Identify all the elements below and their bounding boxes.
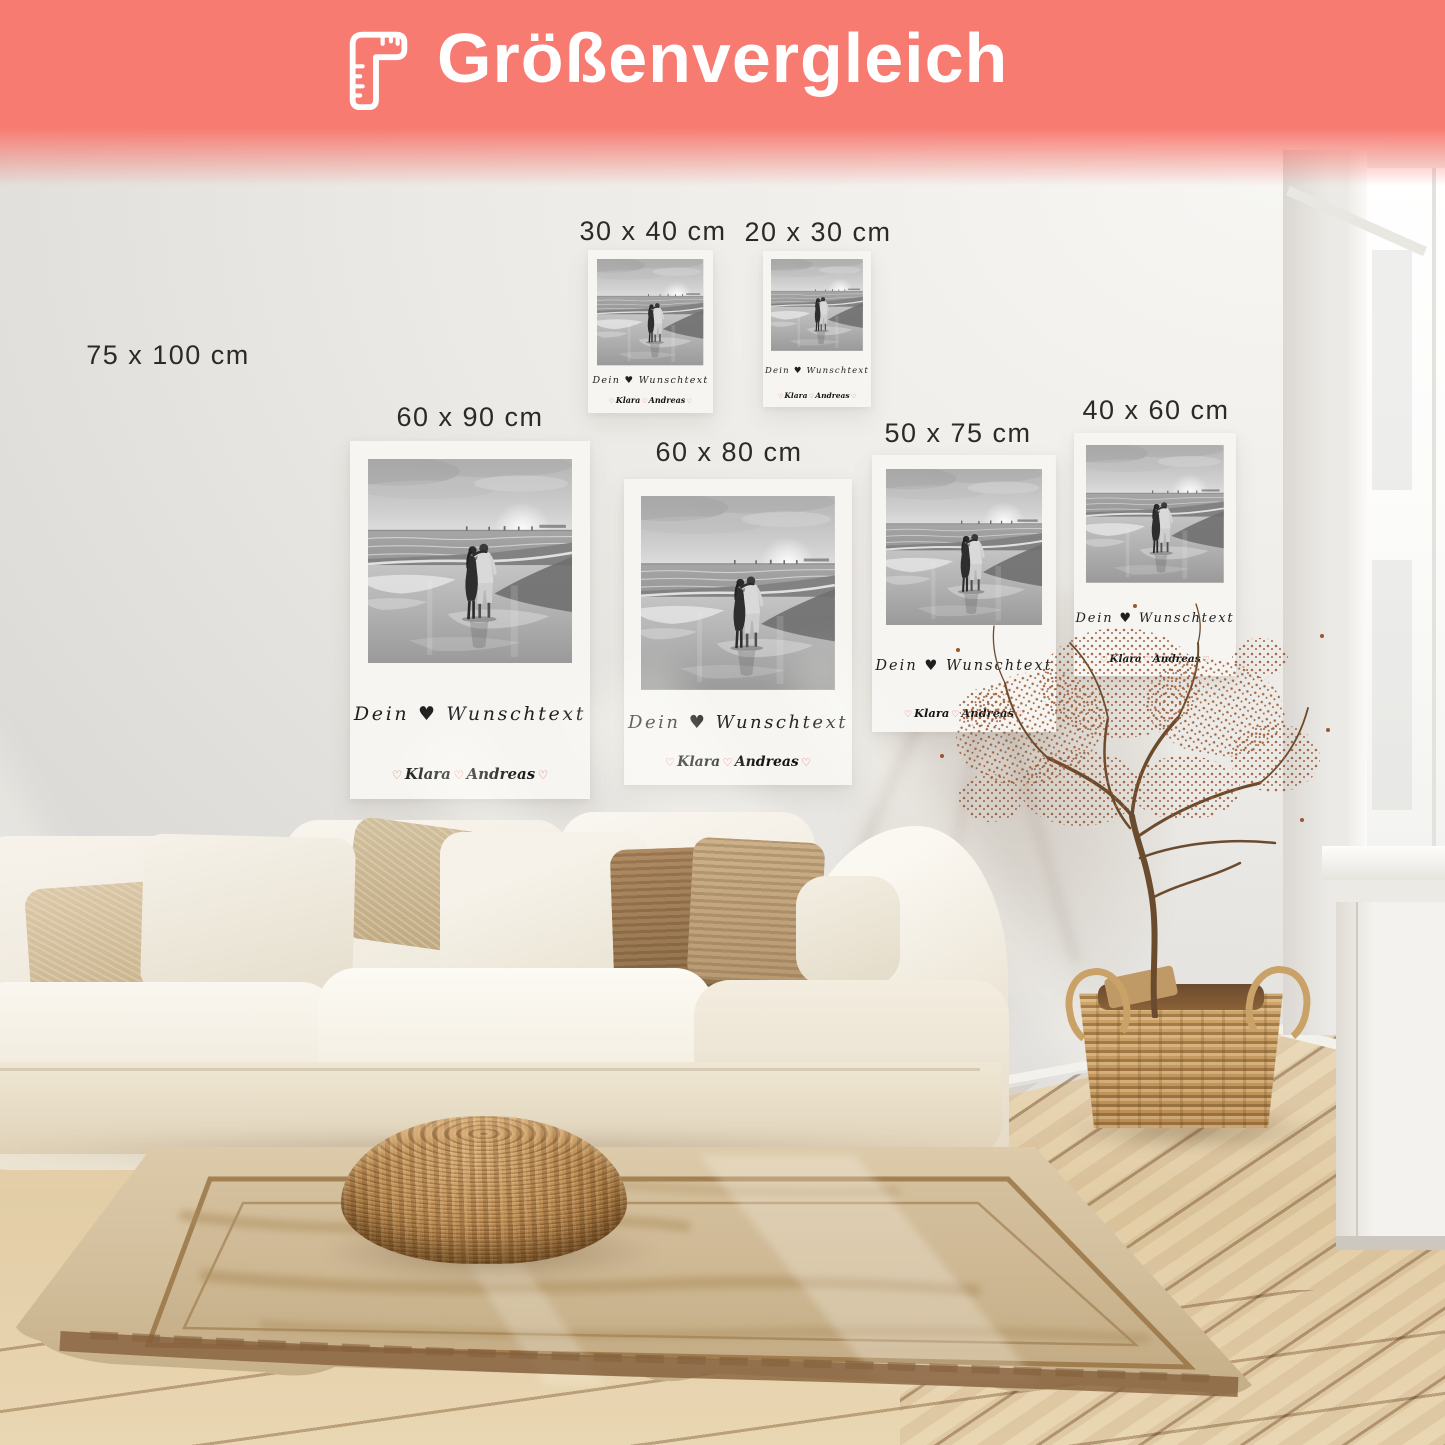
window-pane-shadow	[1372, 560, 1412, 810]
heart-icon: ♡	[851, 394, 856, 400]
poster-custom-text: Dein ♥ Wunschtext	[592, 375, 708, 386]
heart-icon: ♡	[392, 768, 402, 782]
poster-custom-text: Dein ♥ Wunschtext	[765, 366, 869, 376]
size-label-40x60: 40 x 60 cm	[1082, 395, 1229, 426]
heart-icon: ♡	[538, 768, 548, 782]
window-sash	[1432, 168, 1436, 846]
throw-pillow-bolster	[796, 876, 900, 986]
beach-photo	[1086, 445, 1224, 583]
size-comparison-scene: 75 x 100 cm 30 x 40 cm Dein ♥ Wunschtext…	[0, 0, 1445, 1445]
size-label-60x90: 60 x 90 cm	[396, 402, 543, 433]
ruler-icon	[341, 26, 411, 110]
window-pane-shadow	[1372, 250, 1412, 490]
poster-names: ♡Klara♡Andreas♡	[607, 395, 693, 405]
size-label-75x100: 75 x 100 cm	[86, 340, 250, 371]
heart-icon: ♡	[809, 394, 814, 400]
poster-custom-text: Dein ♥ Wunschtext	[354, 703, 586, 725]
sofa-seam	[0, 1068, 980, 1071]
header-banner: Größenvergleich	[0, 0, 1445, 190]
page-title: Größenvergleich	[437, 18, 1008, 98]
throw-pillow-cream	[140, 833, 356, 996]
beach-photo	[771, 259, 863, 351]
heart-icon: ♡	[642, 398, 648, 405]
size-label-50x75: 50 x 75 cm	[884, 418, 1031, 449]
window-sill	[1322, 846, 1445, 880]
size-label-60x80: 60 x 80 cm	[655, 437, 802, 468]
heart-icon: ♡	[778, 394, 783, 400]
beach-photo	[368, 459, 572, 663]
window-frame	[1349, 150, 1367, 862]
size-label-30x40: 30 x 40 cm	[579, 216, 726, 247]
poster-30x40: Dein ♥ Wunschtext ♡Klara♡Andreas♡	[588, 250, 713, 413]
heart-icon: ♡	[801, 756, 811, 769]
size-label-20x30: 20 x 30 cm	[744, 217, 891, 248]
dried-plant	[930, 588, 1340, 1018]
heart-icon: ♡	[904, 710, 912, 720]
heart-icon: ♡	[687, 398, 693, 405]
beach-photo	[597, 259, 703, 365]
heart-icon: ♡	[609, 398, 615, 405]
poster-20x30: Dein ♥ Wunschtext ♡Klara♡Andreas♡	[763, 251, 871, 407]
poster-names: ♡Klara♡Andreas♡	[777, 391, 858, 400]
